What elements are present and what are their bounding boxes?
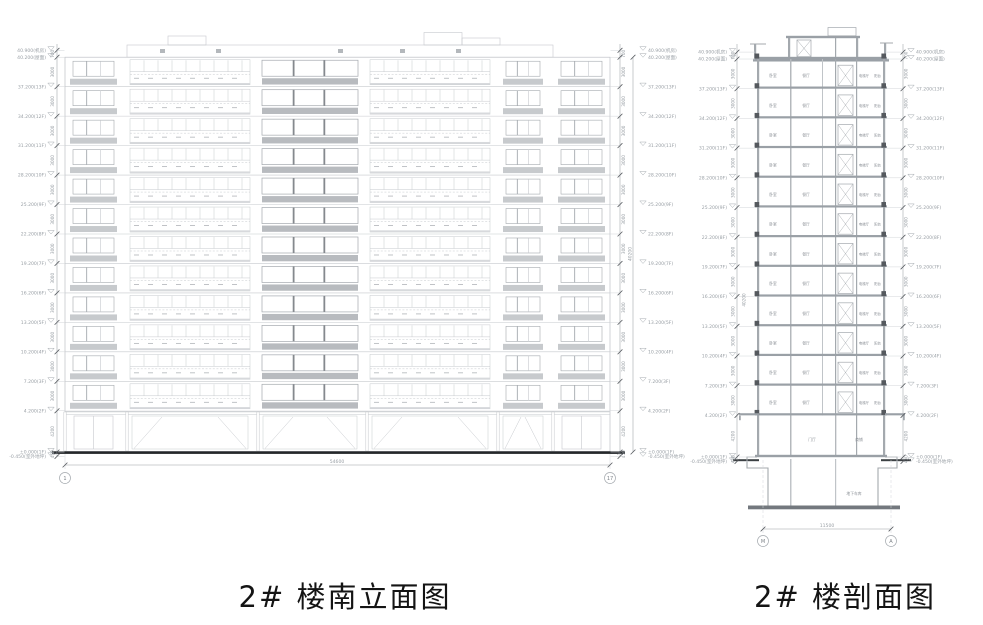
dim-text: 25.200(9F) xyxy=(702,205,727,211)
dim-text: 40.200(屋面) xyxy=(916,57,945,63)
dim-text: 3000 xyxy=(731,365,736,376)
room-label: 卧室 xyxy=(769,370,777,375)
dim-text: 3000 xyxy=(50,184,55,195)
room-label: 阳台 xyxy=(874,192,881,197)
elevation-flag-icon xyxy=(908,204,914,208)
dim-text: 3000 xyxy=(904,68,909,79)
elevation-flag-icon xyxy=(640,47,646,51)
elevation-flag-icon xyxy=(48,142,54,146)
elevation-flag-icon xyxy=(640,54,646,58)
elevation-flag-icon xyxy=(640,113,646,117)
dim-text: 3000 xyxy=(621,214,626,225)
room-label: 餐厅 xyxy=(802,341,810,346)
room-label: 阳台 xyxy=(874,311,881,316)
elevation-flag-icon xyxy=(729,352,735,356)
elevation-flag-icon xyxy=(48,407,54,411)
dim-text: 40.900(机房) xyxy=(17,47,46,54)
dim-text: 3000 xyxy=(621,96,626,107)
dim-text: 19.200(7F) xyxy=(702,265,727,271)
dim-text: 3000 xyxy=(904,157,909,168)
dim-text: 3000 xyxy=(50,331,55,342)
dim-text: 34.200(12F) xyxy=(916,116,944,122)
dim-text: 商铺 xyxy=(855,437,863,442)
room-label: 卧室 xyxy=(769,281,777,286)
room-label: 餐厅 xyxy=(802,162,810,167)
dim-text: 40200 xyxy=(628,247,634,261)
dim-text: 40.900(机房) xyxy=(648,47,677,54)
dim-text: 19.200(7F) xyxy=(21,261,46,267)
dim-text: 3000 xyxy=(904,187,909,198)
dim-text: 3000 xyxy=(50,155,55,166)
dim-text: 19.200(7F) xyxy=(916,265,941,271)
dim-text: 450 xyxy=(904,455,909,463)
dim-text: 37.200(13F) xyxy=(699,86,727,92)
room-label: 电梯厅 xyxy=(859,311,870,316)
dim-text: 7.200(3F) xyxy=(916,383,939,389)
dim-text: 37.200(13F) xyxy=(18,84,46,90)
dim-text: 3000 xyxy=(50,214,55,225)
elevation-flag-icon xyxy=(729,174,735,178)
elevation-flag-icon xyxy=(908,323,914,327)
room-label: 电梯厅 xyxy=(859,162,870,167)
room-label: 电梯厅 xyxy=(859,192,870,197)
dim-text: 31.200(11F) xyxy=(699,146,727,152)
section-bottom-dims: 11500MA xyxy=(758,460,897,547)
dim-text: 3000 xyxy=(50,361,55,372)
dim-text: 10.200(4F) xyxy=(702,354,727,360)
dim-text: 40200 xyxy=(742,293,747,307)
elevation-flag-icon xyxy=(640,378,646,382)
elevation-flag-icon xyxy=(48,83,54,87)
dim-text: 3000 xyxy=(621,361,626,372)
elevation-flag-icon xyxy=(729,115,735,119)
elevation-flag-icon xyxy=(908,174,914,178)
elevation-flag-icon xyxy=(640,407,646,411)
room-label: 餐厅 xyxy=(802,222,810,227)
room-label: 电梯厅 xyxy=(859,222,870,227)
elevation-flag-icon xyxy=(908,234,914,238)
dim-text: 3000 xyxy=(731,395,736,406)
room-label: 卧室 xyxy=(769,73,777,78)
elevation-flag-icon xyxy=(908,115,914,119)
dim-text: 3000 xyxy=(621,184,626,195)
dim-text: 3000 xyxy=(621,390,626,401)
room-label: 阳台 xyxy=(874,162,881,167)
dim-text: 3000 xyxy=(904,276,909,287)
dim-text: A xyxy=(889,539,893,545)
dim-text: 4.200(2F) xyxy=(24,408,47,414)
room-label: 卧室 xyxy=(769,400,777,405)
room-label: 阳台 xyxy=(874,222,881,227)
room-label: 餐厅 xyxy=(802,400,810,405)
room-label: 阳台 xyxy=(874,251,881,256)
elevation-flag-icon xyxy=(729,48,735,52)
room-label: 阳台 xyxy=(874,400,881,405)
elevation-flag-icon xyxy=(640,260,646,264)
dim-text: -0.450(室外地坪) xyxy=(916,458,953,465)
dim-text: 3000 xyxy=(621,331,626,342)
elevation-flag-icon xyxy=(640,289,646,293)
dim-text: 7.200(3F) xyxy=(648,379,671,385)
dim-text: 3000 xyxy=(621,125,626,136)
foundation-slab xyxy=(748,506,900,510)
dim-text: 3000 xyxy=(904,128,909,139)
elevation-flag-icon xyxy=(908,293,914,297)
room-label: 阳台 xyxy=(874,73,881,78)
dim-text: 54600 xyxy=(330,459,345,465)
dim-text: 25.200(9F) xyxy=(21,202,46,208)
room-label: 卧室 xyxy=(769,192,777,197)
room-label: 卧室 xyxy=(769,341,777,346)
dim-text: 4200 xyxy=(731,431,736,442)
dim-text: 13.200(5F) xyxy=(916,324,941,330)
dim-text: 25.200(9F) xyxy=(916,205,941,211)
section-right-dims: 40.900(机房)70040.200(屋面)300037.200(13F)30… xyxy=(887,44,953,465)
elevation-flag-icon xyxy=(640,142,646,146)
dim-text: 40.900(机房) xyxy=(916,49,945,56)
elevation-flag-icon xyxy=(48,171,54,175)
elevation-flag-icon xyxy=(640,319,646,323)
elevation-flag-icon xyxy=(908,85,914,89)
dim-text: 16.200(6F) xyxy=(21,291,46,297)
elevation-flag-icon xyxy=(48,289,54,293)
elevation-left-dims: 40.900(机房)70040.200(屋面)300037.200(13F)30… xyxy=(9,44,64,460)
dim-text: 3000 xyxy=(731,157,736,168)
dim-text: 3000 xyxy=(904,246,909,257)
dim-text: 25.200(9F) xyxy=(648,202,673,208)
elevation-flag-icon xyxy=(908,352,914,356)
room-label: 阳台 xyxy=(874,281,881,286)
dim-text: 28.200(10F) xyxy=(18,173,46,179)
room-label: 地下车库 xyxy=(846,491,861,496)
dim-text: 22.200(8F) xyxy=(916,235,941,241)
dim-text: 3000 xyxy=(904,306,909,317)
dim-text: 3000 xyxy=(731,68,736,79)
elevation-flag-icon xyxy=(908,55,914,59)
elevation-flag-icon xyxy=(48,113,54,117)
dim-text: 4200 xyxy=(621,426,626,437)
dim-text: 3000 xyxy=(731,98,736,109)
dim-text: 3000 xyxy=(731,246,736,257)
elevation-flag-icon xyxy=(908,263,914,267)
dim-text: 3000 xyxy=(50,273,55,284)
ground-line xyxy=(52,451,625,454)
dim-text: 3000 xyxy=(621,273,626,284)
dim-text: 3000 xyxy=(621,155,626,166)
dim-text: 门厅 xyxy=(808,437,816,442)
elevation-flag-icon xyxy=(48,319,54,323)
room-label: 餐厅 xyxy=(802,133,810,138)
dim-text: 40.200(屋面) xyxy=(17,55,46,61)
dim-text: 37.200(13F) xyxy=(648,84,676,90)
dim-text: 16.200(6F) xyxy=(916,294,941,300)
elevation-flag-icon xyxy=(640,201,646,205)
elevation-flag-icon xyxy=(640,453,646,457)
dim-text: 40.200(屋面) xyxy=(698,57,727,63)
elevation-bottom-dims: 54600117 xyxy=(60,454,616,484)
room-label: 电梯厅 xyxy=(859,73,870,78)
dim-text: 4200 xyxy=(50,426,55,437)
section-drawing: 卧室餐厅电梯厅阳台卧室餐厅电梯厅阳台卧室餐厅电梯厅阳台卧室餐厅电梯厅阳台卧室餐厅… xyxy=(690,28,953,547)
dim-text: 4.200(2F) xyxy=(916,413,939,419)
drawings-canvas: 40.900(机房)70040.200(屋面)300037.200(13F)30… xyxy=(0,0,983,572)
section-left-dims: 40.900(机房)70040.200(屋面)300037.200(13F)30… xyxy=(690,44,755,465)
elevation-flag-icon xyxy=(729,204,735,208)
dim-text: 1 xyxy=(63,476,66,482)
dim-text: -0.450(室外地坪) xyxy=(9,453,46,460)
dim-text: 3000 xyxy=(731,336,736,347)
elevation-flag-icon xyxy=(729,412,735,416)
elevation-flag-icon xyxy=(48,378,54,382)
dim-text: 37.200(13F) xyxy=(916,86,944,92)
dim-text: 40.900(机房) xyxy=(698,49,727,56)
room-label: 卧室 xyxy=(769,133,777,138)
dim-text: 31.200(11F) xyxy=(648,143,676,149)
dim-text: 450 xyxy=(621,450,626,458)
dim-text: 3000 xyxy=(50,96,55,107)
dim-text: 3000 xyxy=(731,187,736,198)
dim-text: 4.200(2F) xyxy=(648,408,671,414)
room-label: 餐厅 xyxy=(802,251,810,256)
elevation-flag-icon xyxy=(908,453,914,457)
room-label: 餐厅 xyxy=(802,370,810,375)
room-label: 餐厅 xyxy=(802,311,810,316)
room-label: 卧室 xyxy=(769,251,777,256)
elevation-flag-icon xyxy=(908,382,914,386)
room-label: 阳台 xyxy=(874,133,881,138)
room-label: 阳台 xyxy=(874,370,881,375)
dim-text: 3000 xyxy=(731,306,736,317)
south-elevation-drawing: 40.900(机房)70040.200(屋面)300037.200(13F)30… xyxy=(9,33,685,484)
dim-text: 28.200(10F) xyxy=(699,175,727,181)
dim-text: 3000 xyxy=(621,66,626,77)
elevation-flag-icon xyxy=(729,85,735,89)
elevation-flag-icon xyxy=(48,201,54,205)
dim-text: 4200 xyxy=(904,431,909,442)
dim-text: 700 xyxy=(621,49,626,57)
dim-text: 22.200(8F) xyxy=(702,235,727,241)
dim-text: 3000 xyxy=(731,128,736,139)
dim-text: 450 xyxy=(50,450,55,458)
room-label: 电梯厅 xyxy=(859,103,870,108)
dim-text: 34.200(12F) xyxy=(648,114,676,120)
dim-text: 3000 xyxy=(904,217,909,228)
elevation-flag-icon xyxy=(640,348,646,352)
room-label: 卧室 xyxy=(769,222,777,227)
room-label: 电梯厅 xyxy=(859,400,870,405)
dim-text: 3000 xyxy=(50,390,55,401)
elevation-flag-icon xyxy=(640,448,646,452)
elevation-flag-icon xyxy=(729,234,735,238)
drawing-sheet: 40.900(机房)70040.200(屋面)300037.200(13F)30… xyxy=(0,0,983,625)
dim-text: 17 xyxy=(607,476,613,482)
dim-text: 3000 xyxy=(621,243,626,254)
dim-text: 7.200(3F) xyxy=(705,383,728,389)
dim-text: 28.200(10F) xyxy=(916,175,944,181)
room-label: 阳台 xyxy=(874,103,881,108)
dim-text: 19.200(7F) xyxy=(648,261,673,267)
dim-text: 3000 xyxy=(50,243,55,254)
dim-text: 13.200(5F) xyxy=(21,320,46,326)
elevation-flag-icon xyxy=(729,145,735,149)
dim-text: 16.200(6F) xyxy=(648,291,673,297)
room-label: 卧室 xyxy=(769,103,777,108)
elevation-flag-icon xyxy=(729,293,735,297)
dim-text: 34.200(12F) xyxy=(18,114,46,120)
elevation-flag-icon xyxy=(48,230,54,234)
dim-text: 4.200(2F) xyxy=(705,413,728,419)
section-title: 2# 楼剖面图 xyxy=(715,576,975,618)
dim-text: 3000 xyxy=(50,125,55,136)
dim-text: 13.200(5F) xyxy=(648,320,673,326)
room-label: 卧室 xyxy=(769,162,777,167)
dim-text: -0.450(室外地坪) xyxy=(690,458,727,465)
dim-text: 13.200(5F) xyxy=(702,324,727,330)
room-label: 电梯厅 xyxy=(859,133,870,138)
room-label: 餐厅 xyxy=(802,281,810,286)
elevation-flag-icon xyxy=(640,171,646,175)
dim-text: 3000 xyxy=(50,302,55,313)
dim-text: 3000 xyxy=(904,395,909,406)
room-label: 卧室 xyxy=(769,311,777,316)
elevation-flag-icon xyxy=(729,382,735,386)
room-label: 餐厅 xyxy=(802,192,810,197)
dim-text: 28.200(10F) xyxy=(648,173,676,179)
dim-text: 40.200(屋面) xyxy=(648,55,677,61)
elevation-flag-icon xyxy=(48,348,54,352)
room-label: 餐厅 xyxy=(802,103,810,108)
dim-text: 10.200(4F) xyxy=(21,349,46,355)
elevation-flag-icon xyxy=(908,145,914,149)
elevation-flag-icon xyxy=(640,230,646,234)
dim-text: 3000 xyxy=(731,276,736,287)
dim-text: 16.200(6F) xyxy=(702,294,727,300)
elevation-right-dims: 4020040.900(机房)70040.200(屋面)300037.200(1… xyxy=(611,44,685,460)
elevation-flag-icon xyxy=(908,48,914,52)
dim-text: 22.200(8F) xyxy=(648,232,673,238)
elevation-flag-icon xyxy=(640,83,646,87)
dim-text: 3000 xyxy=(904,336,909,347)
room-label: 电梯厅 xyxy=(859,251,870,256)
elevation-flag-icon xyxy=(729,323,735,327)
dim-text: 10.200(4F) xyxy=(916,354,941,360)
room-label: 电梯厅 xyxy=(859,370,870,375)
dim-text: M xyxy=(761,539,765,545)
dim-text: 11500 xyxy=(820,523,835,529)
dim-text: 3000 xyxy=(731,217,736,228)
dim-text: 34.200(12F) xyxy=(699,116,727,122)
dim-text: 3000 xyxy=(621,302,626,313)
dim-text: 7.200(3F) xyxy=(24,379,47,385)
room-label: 电梯厅 xyxy=(859,281,870,286)
elevation-flag-icon xyxy=(48,260,54,264)
room-label: 阳台 xyxy=(874,341,881,346)
room-label: 餐厅 xyxy=(802,73,810,78)
elevation-flag-icon xyxy=(729,263,735,267)
dim-text: 3000 xyxy=(50,66,55,77)
elevation-flag-icon xyxy=(908,412,914,416)
dim-text: 3000 xyxy=(904,365,909,376)
dim-text: 22.200(8F) xyxy=(21,232,46,238)
dim-text: 31.200(11F) xyxy=(916,146,944,152)
dim-text: 31.200(11F) xyxy=(18,143,46,149)
dim-text: 10.200(4F) xyxy=(648,349,673,355)
dim-text: 3000 xyxy=(904,98,909,109)
elevation-title: 2# 楼南立面图 xyxy=(150,576,540,618)
room-label: 电梯厅 xyxy=(859,341,870,346)
dim-text: -0.450(室外地坪) xyxy=(648,453,685,460)
